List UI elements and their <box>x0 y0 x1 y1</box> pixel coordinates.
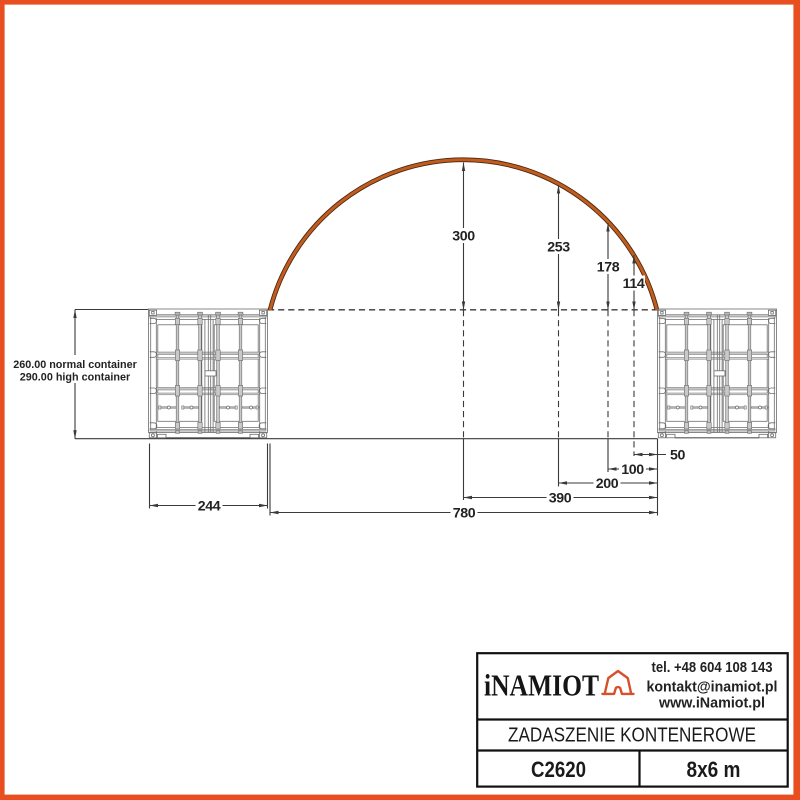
svg-text:C2620: C2620 <box>531 757 586 782</box>
svg-text:ZADASZENIE KONTENEROWE: ZADASZENIE KONTENEROWE <box>508 724 756 746</box>
svg-text:178: 178 <box>597 260 620 276</box>
svg-text:390: 390 <box>549 491 572 507</box>
svg-text:260.00 normal container: 260.00 normal container <box>13 359 137 371</box>
svg-text:tel. +48 604 108 143: tel. +48 604 108 143 <box>652 659 773 676</box>
svg-text:www.iNamiot.pl: www.iNamiot.pl <box>658 694 765 711</box>
svg-text:244: 244 <box>198 499 221 515</box>
svg-text:780: 780 <box>453 506 476 522</box>
svg-text:114: 114 <box>623 276 645 292</box>
svg-text:iNAMIOT: iNAMIOT <box>484 668 599 703</box>
svg-text:8x6 m: 8x6 m <box>687 757 741 782</box>
svg-text:100: 100 <box>621 462 644 478</box>
svg-text:300: 300 <box>452 229 475 245</box>
svg-text:290.00 high container: 290.00 high container <box>20 372 131 384</box>
svg-text:200: 200 <box>596 476 619 492</box>
svg-text:253: 253 <box>547 240 570 256</box>
svg-text:kontakt@inamiot.pl: kontakt@inamiot.pl <box>647 678 778 695</box>
svg-text:50: 50 <box>670 448 685 464</box>
